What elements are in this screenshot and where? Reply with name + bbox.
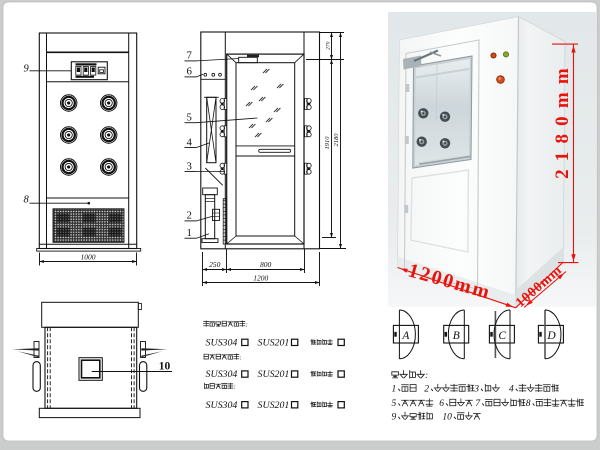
svg-text:270: 270 (325, 41, 331, 50)
svg-text::: : (240, 354, 242, 361)
svg-text:SUS304: SUS304 (206, 338, 238, 349)
svg-text:1200: 1200 (253, 273, 268, 282)
svg-text:1910: 1910 (324, 136, 331, 150)
svg-text:A: A (401, 330, 410, 342)
svg-text:1: 1 (187, 227, 192, 239)
svg-text:6: 6 (439, 399, 444, 409)
svg-text:250: 250 (209, 260, 221, 269)
svg-text:5: 5 (392, 399, 397, 409)
svg-text:B: B (453, 330, 460, 342)
svg-text:D: D (546, 330, 556, 342)
svg-text:5: 5 (187, 112, 192, 124)
svg-text:8: 8 (526, 399, 531, 409)
svg-text:2: 2 (187, 210, 192, 222)
svg-text:C: C (498, 330, 506, 342)
svg-text:0: 0 (447, 413, 452, 423)
svg-text::: : (234, 384, 236, 391)
svg-text:3: 3 (473, 385, 479, 395)
svg-text:SUS201: SUS201 (258, 400, 290, 411)
svg-text:6: 6 (187, 66, 193, 78)
svg-text:SUS201: SUS201 (258, 338, 290, 349)
svg-text::: : (425, 370, 428, 380)
svg-text:3: 3 (187, 160, 192, 172)
svg-text:1000: 1000 (81, 252, 96, 261)
svg-text:9: 9 (24, 64, 30, 75)
svg-text:4: 4 (509, 385, 514, 395)
svg-text:7: 7 (187, 50, 193, 62)
svg-text:2180: 2180 (333, 133, 340, 147)
svg-text:9: 9 (392, 413, 397, 423)
svg-text:SUS304: SUS304 (206, 400, 238, 411)
svg-text::: : (246, 321, 248, 328)
svg-text:SUS304: SUS304 (206, 369, 238, 380)
svg-text:10: 10 (159, 361, 171, 373)
svg-text:2: 2 (424, 385, 429, 395)
svg-text:SUS201: SUS201 (258, 369, 290, 380)
svg-text:800: 800 (260, 260, 272, 269)
svg-text:4: 4 (187, 136, 193, 148)
svg-text:8: 8 (24, 195, 30, 206)
svg-text:2180mm: 2180mm (552, 60, 573, 179)
svg-text:1: 1 (392, 385, 397, 395)
